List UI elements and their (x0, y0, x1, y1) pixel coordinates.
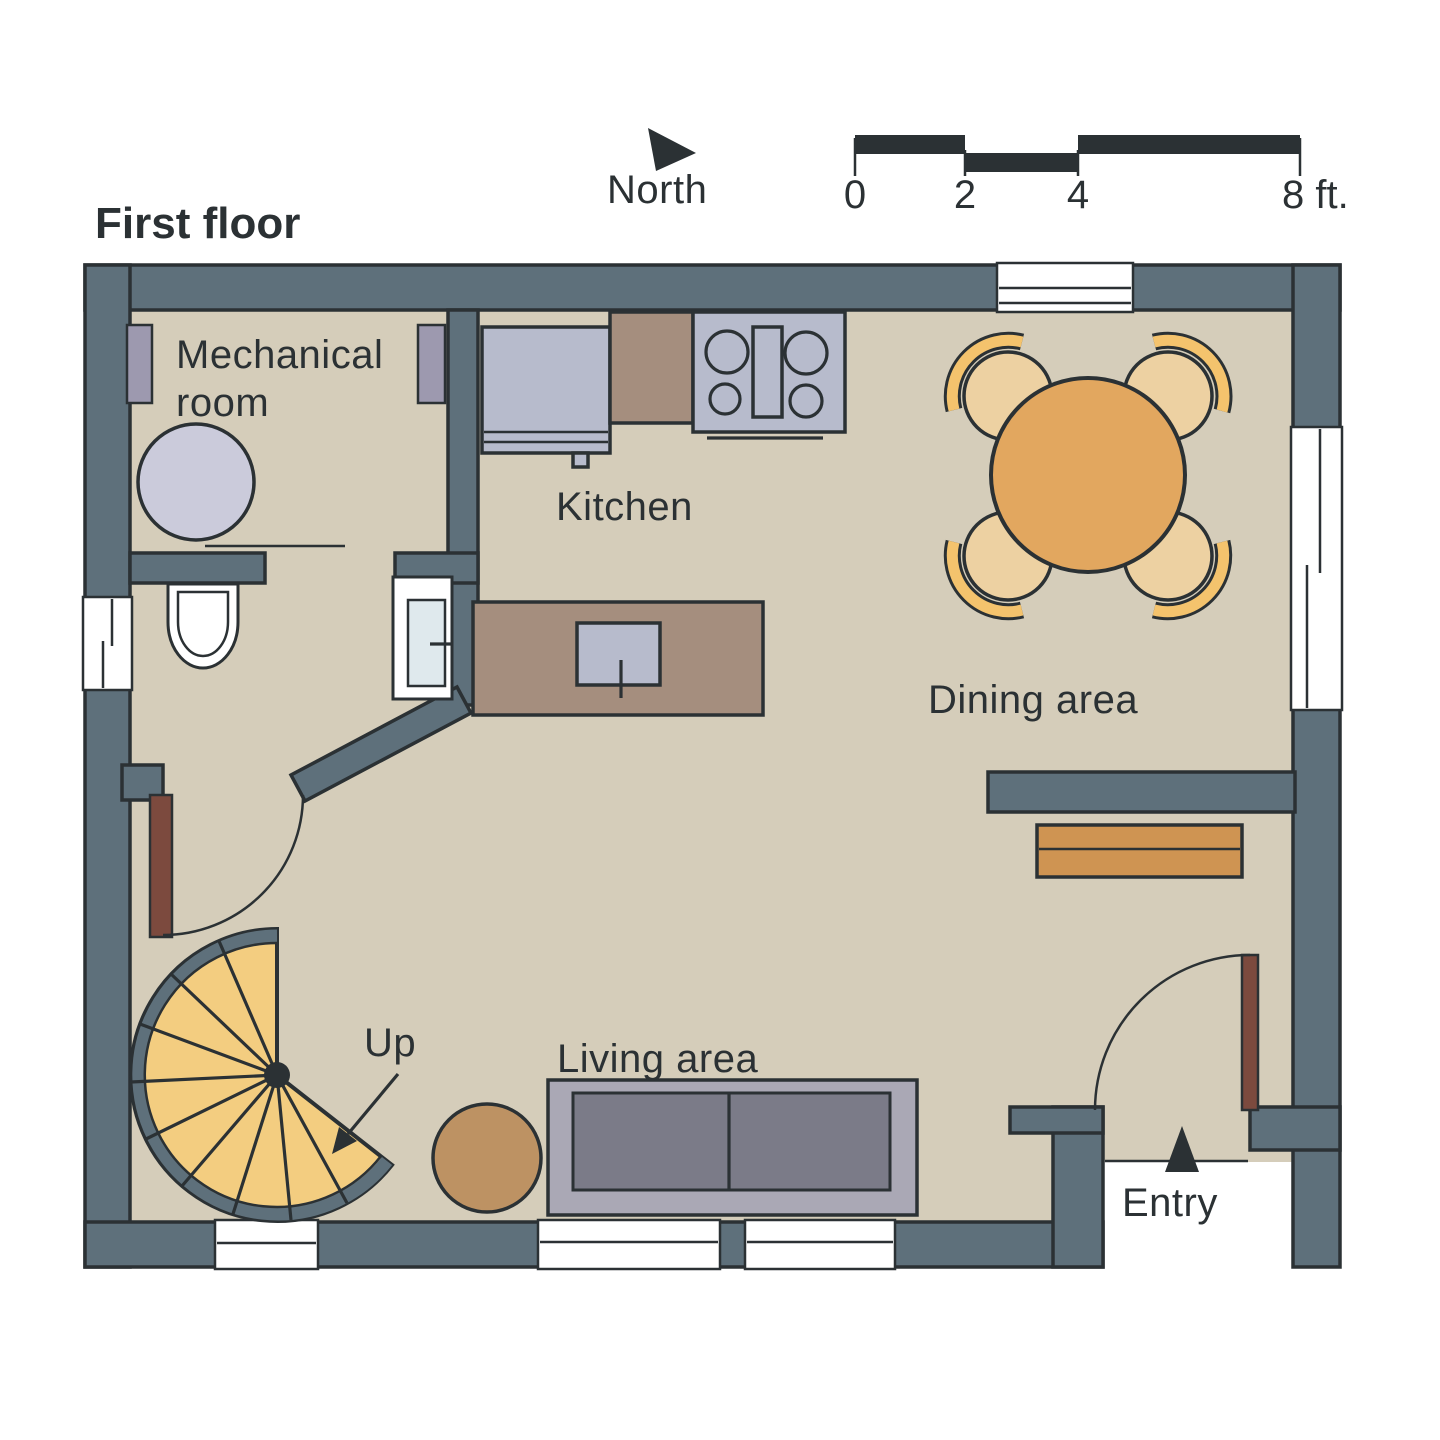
stove-center-panel (753, 327, 782, 417)
window-bottom-wall-left (215, 1220, 318, 1269)
island-sink (577, 623, 660, 685)
entry-jamb-right (1250, 1107, 1340, 1150)
window-right-wall (1291, 427, 1342, 710)
room-label-living: Living area (557, 1037, 758, 1081)
room-label-mechanical-line1: Mechanical (176, 333, 383, 377)
window-bottom-wall-center (538, 1220, 720, 1269)
page-title: First floor (95, 199, 300, 248)
entry-jamb-left (1010, 1107, 1103, 1133)
dining-partition-wall (988, 772, 1295, 812)
room-label-mechanical-line2: room (176, 381, 269, 425)
window-left-wall (83, 597, 132, 690)
side-table (433, 1104, 541, 1212)
stair-center-post (264, 1062, 290, 1088)
entry-door (1242, 955, 1258, 1110)
north-arrow-icon (648, 128, 696, 171)
scale-segment (855, 135, 965, 154)
entry-label: Entry (1122, 1181, 1218, 1225)
scale-tick-label: 8 ft. (1282, 173, 1349, 217)
north-label: North (607, 168, 707, 212)
equipment-panel-left (127, 325, 152, 403)
room-label-kitchen: Kitchen (556, 485, 693, 529)
water-heater (138, 424, 254, 540)
compass: North (607, 128, 707, 212)
scale-tick-label: 0 (844, 173, 866, 217)
refrigerator-handle (573, 453, 588, 467)
scale-segment (1078, 135, 1300, 154)
stairs-up-label: Up (364, 1021, 416, 1065)
window-bottom-wall-right (745, 1220, 895, 1269)
kitchen-counter (610, 312, 693, 423)
scale-bar: 0 2 4 8 ft. (844, 135, 1349, 217)
exterior-wall-top (85, 265, 1340, 310)
refrigerator (482, 327, 610, 453)
sofa-cushions (573, 1093, 890, 1190)
floor-plan-canvas: North 0 2 4 8 ft. First floor Mechanical… (0, 0, 1440, 1440)
dining-table (991, 378, 1185, 572)
mechanical-room-south-wall (130, 553, 265, 583)
room-label-dining: Dining area (928, 678, 1138, 722)
bathroom-door (150, 795, 172, 937)
scale-tick-label: 2 (954, 173, 976, 217)
equipment-panel-right (418, 325, 445, 403)
scale-segment (965, 153, 1078, 172)
console-bench (1037, 825, 1242, 877)
scale-tick-label: 4 (1067, 173, 1089, 217)
